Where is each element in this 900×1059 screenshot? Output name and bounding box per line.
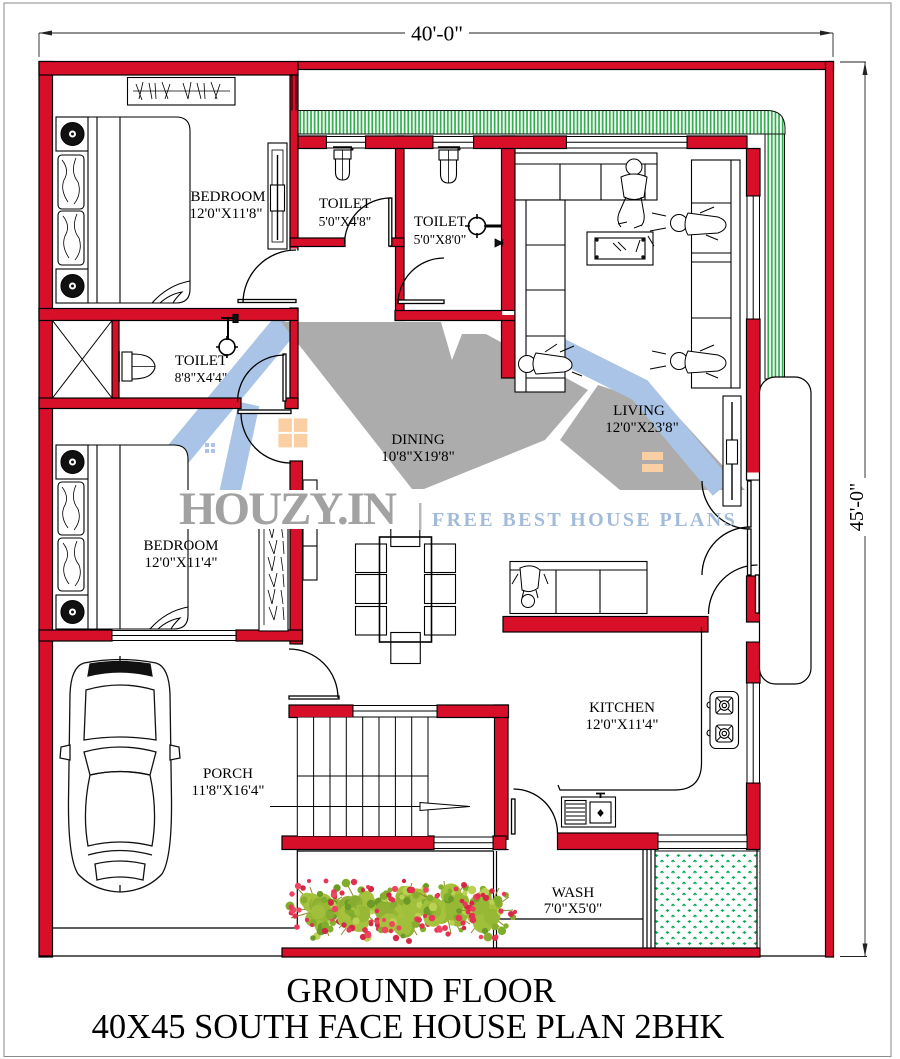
svg-text:PORCH: PORCH <box>203 766 253 782</box>
svg-text:7'0"X5'0": 7'0"X5'0" <box>544 901 602 917</box>
svg-text:11'8"X16'4": 11'8"X16'4" <box>192 783 265 799</box>
svg-text:40'-0": 40'-0" <box>411 22 463 46</box>
svg-text:12'0"X23'8": 12'0"X23'8" <box>605 420 678 436</box>
svg-text:FREE BEST HOUSE PLANS: FREE BEST HOUSE PLANS <box>432 509 737 531</box>
svg-text:10'8"X19'8": 10'8"X19'8" <box>381 449 454 465</box>
svg-text:12'0"X11'8": 12'0"X11'8" <box>190 206 263 222</box>
svg-text:BEDROOM: BEDROOM <box>190 189 265 205</box>
svg-text:12'0"X11'4": 12'0"X11'4" <box>145 555 218 571</box>
svg-text:5'0"X8'0": 5'0"X8'0" <box>414 232 467 247</box>
svg-text:DINING: DINING <box>391 432 444 448</box>
svg-text:KITCHEN: KITCHEN <box>589 700 655 716</box>
svg-text:LIVING: LIVING <box>613 403 665 419</box>
svg-text:8'8"X4'4": 8'8"X4'4" <box>175 370 228 385</box>
svg-text:WASH: WASH <box>552 885 595 901</box>
svg-text:12'0"X11'4": 12'0"X11'4" <box>586 717 659 733</box>
svg-text:45'-0": 45'-0" <box>846 483 868 531</box>
svg-text:TOILET: TOILET <box>175 353 227 369</box>
svg-text:5'0"X4'8": 5'0"X4'8" <box>319 214 372 229</box>
svg-text:BEDROOM: BEDROOM <box>143 538 218 554</box>
svg-text:TOILET: TOILET <box>414 214 466 230</box>
svg-text:TOILET: TOILET <box>319 196 371 212</box>
svg-text:GROUND FLOOR: GROUND FLOOR <box>286 972 555 1010</box>
svg-text:HOUZY.IN: HOUZY.IN <box>179 483 397 535</box>
svg-text:40X45 SOUTH FACE HOUSE PLAN 2B: 40X45 SOUTH FACE HOUSE PLAN 2BHK <box>92 1008 725 1046</box>
